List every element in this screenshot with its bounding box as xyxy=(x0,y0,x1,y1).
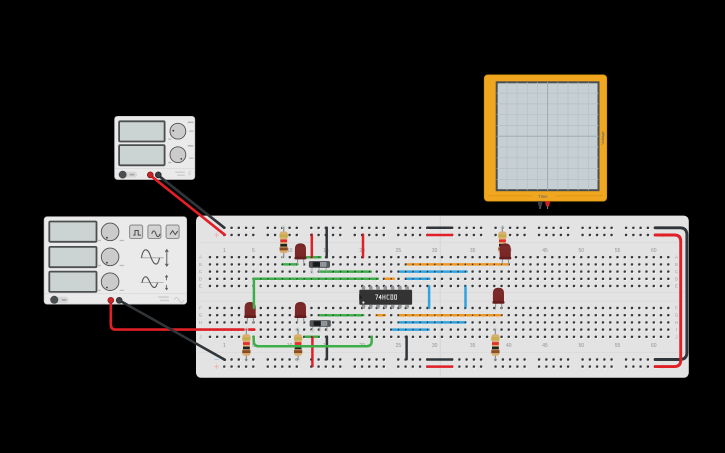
svg-text:40: 40 xyxy=(506,343,512,349)
svg-text:F: F xyxy=(199,306,202,311)
svg-text:60: 60 xyxy=(651,248,657,254)
svg-text:35: 35 xyxy=(470,343,476,349)
svg-text:D: D xyxy=(199,276,202,281)
svg-text:C: C xyxy=(675,269,678,274)
svg-text:60: 60 xyxy=(651,343,657,349)
svg-text:45: 45 xyxy=(542,343,548,349)
svg-text:25: 25 xyxy=(396,343,402,349)
svg-text:25: 25 xyxy=(396,248,402,254)
svg-text:F: F xyxy=(675,306,678,311)
svg-text:J: J xyxy=(675,334,677,339)
svg-text:G: G xyxy=(675,313,679,318)
svg-text:I: I xyxy=(676,327,677,332)
svg-text:B: B xyxy=(675,262,678,267)
svg-text:1: 1 xyxy=(223,248,226,254)
svg-text:30: 30 xyxy=(432,343,438,349)
svg-text:H: H xyxy=(675,320,678,325)
svg-text:A: A xyxy=(199,255,202,260)
svg-text:50: 50 xyxy=(579,343,585,349)
svg-text:B: B xyxy=(199,262,202,267)
svg-text:D: D xyxy=(675,276,678,281)
svg-text:30: 30 xyxy=(432,248,438,254)
svg-text:A: A xyxy=(675,255,678,260)
svg-text:J: J xyxy=(199,334,201,339)
svg-text:G: G xyxy=(199,313,203,318)
svg-text:Voltage: Voltage xyxy=(600,131,605,145)
svg-text:55: 55 xyxy=(615,343,621,349)
svg-text:C: C xyxy=(199,269,202,274)
svg-text:E: E xyxy=(675,284,678,289)
svg-text:50: 50 xyxy=(579,248,585,254)
svg-text:1: 1 xyxy=(223,343,226,349)
svg-text:E: E xyxy=(199,284,202,289)
svg-text:45: 45 xyxy=(542,248,548,254)
svg-text:35: 35 xyxy=(470,248,476,254)
svg-text:55: 55 xyxy=(615,248,621,254)
svg-text:H: H xyxy=(199,320,202,325)
svg-text:Time: Time xyxy=(538,194,548,199)
svg-text:5: 5 xyxy=(252,248,255,254)
